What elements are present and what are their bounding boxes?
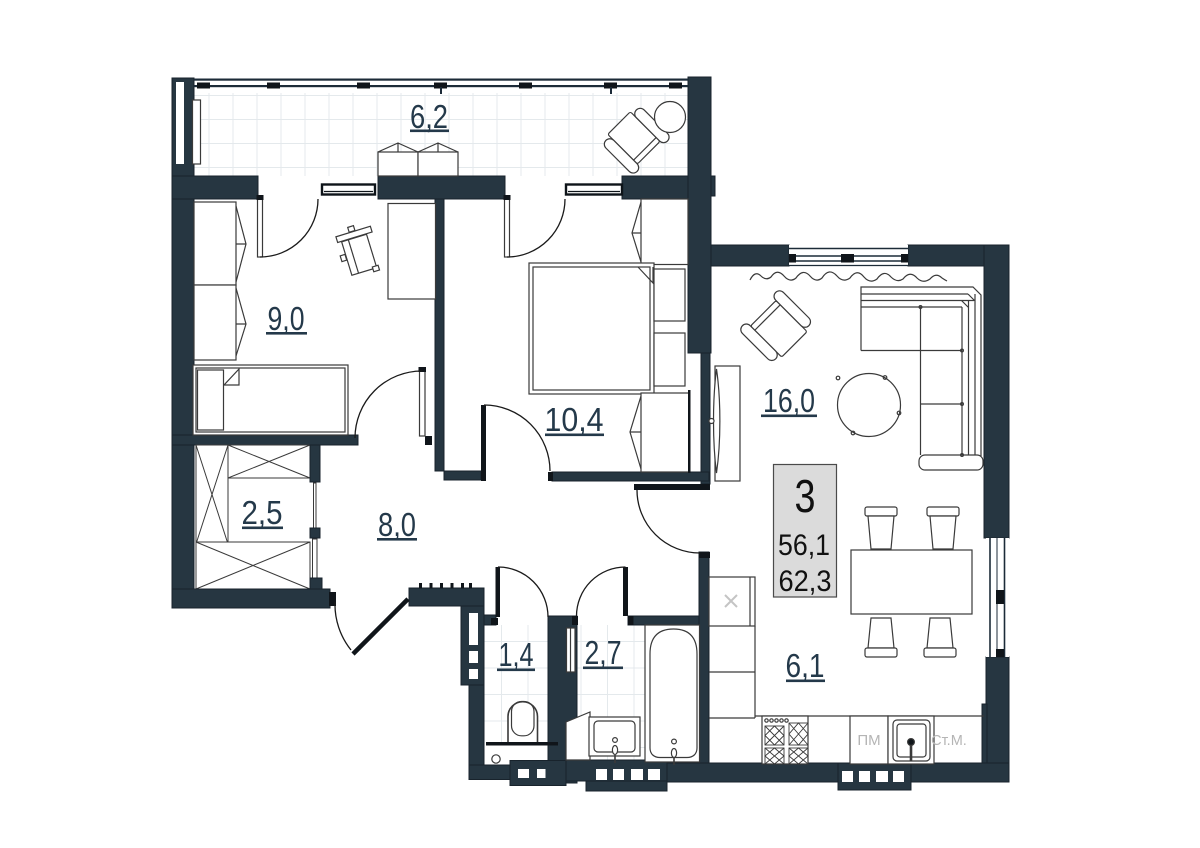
svg-text:1,4: 1,4: [499, 636, 534, 673]
svg-text:Ст.М.: Ст.М.: [931, 733, 967, 749]
svg-text:8,0: 8,0: [378, 506, 416, 543]
svg-text:3: 3: [795, 470, 816, 522]
svg-text:10,4: 10,4: [545, 401, 604, 438]
svg-text:9,0: 9,0: [268, 300, 305, 337]
svg-text:62,3: 62,3: [779, 565, 832, 598]
svg-text:6,2: 6,2: [410, 98, 448, 135]
svg-text:2,7: 2,7: [585, 634, 622, 671]
svg-text:ПМ: ПМ: [857, 732, 880, 749]
svg-text:6,1: 6,1: [786, 647, 825, 684]
svg-text:56,1: 56,1: [778, 529, 830, 562]
svg-text:2,5: 2,5: [242, 494, 283, 531]
svg-text:16,0: 16,0: [763, 382, 815, 419]
